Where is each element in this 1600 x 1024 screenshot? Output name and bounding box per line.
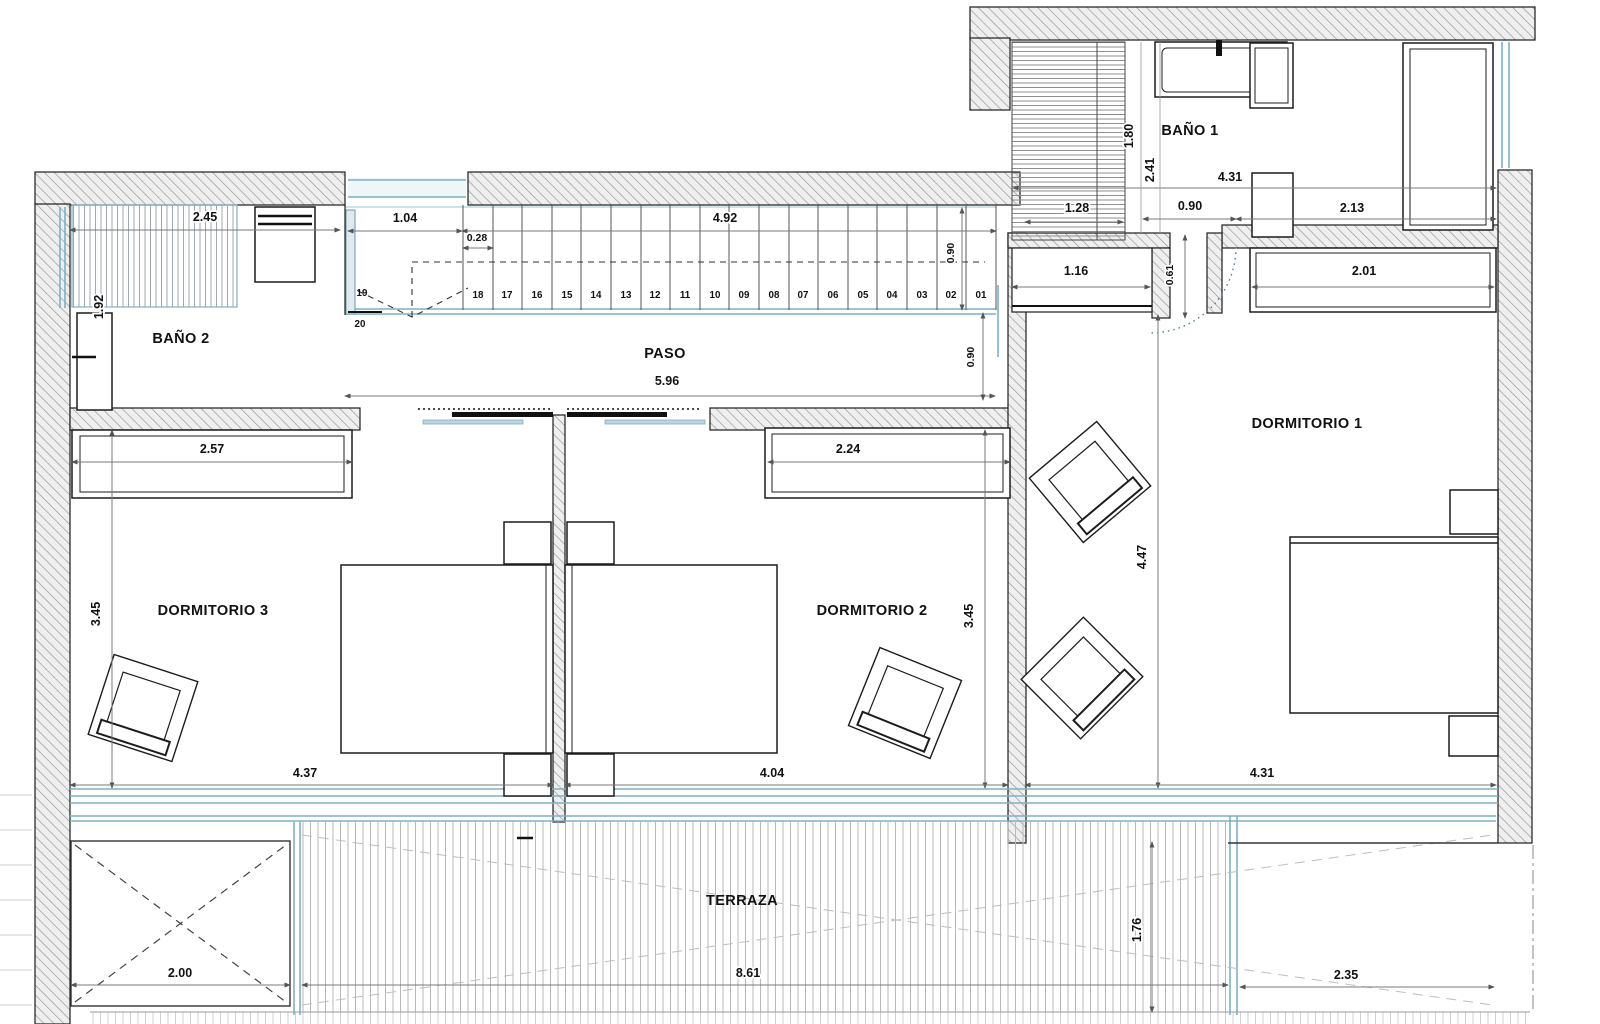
armchair-dorm2 — [848, 648, 961, 759]
nightstand — [504, 754, 551, 796]
dim-bano1-a: 1.80 — [1122, 124, 1136, 148]
stair-step: 09 — [739, 290, 750, 301]
closet-116-front — [1012, 248, 1152, 312]
stair-step: 11 — [680, 290, 691, 301]
dim-bano2-depth: 1.92 — [92, 295, 106, 319]
terraza-area — [0, 795, 1533, 1024]
wardrobe-dorm3 — [72, 430, 352, 498]
dim-dorm2-depth: 3.45 — [962, 604, 976, 628]
dim-stair-run: 4.92 — [713, 211, 737, 225]
terraza-right-divider — [1230, 816, 1237, 1015]
label-dormitorio1: DORMITORIO 1 — [1252, 416, 1363, 432]
label-terraza: TERRAZA — [706, 893, 778, 909]
dim-stair-tread: 0.28 — [467, 232, 488, 244]
dim-dorm3-wardrobe: 2.57 — [200, 442, 224, 456]
stair-step: 16 — [532, 290, 543, 301]
nightstand — [567, 522, 614, 564]
nightstand — [1450, 490, 1498, 534]
armchair-dorm1-b — [1021, 617, 1143, 739]
wall-door-stub — [1207, 233, 1222, 313]
wall-bano2-bottom — [70, 408, 360, 430]
room-labels: BAÑO 1 BAÑO 2 PASO DORMITORIO 1 DORMITOR… — [152, 121, 1362, 909]
dim-dorm1-wardrobe: 2.01 — [1352, 264, 1376, 278]
wall-top-right — [970, 7, 1535, 40]
dim-stair-landing: 1.04 — [393, 211, 417, 225]
dim-bano1-b: 2.41 — [1143, 158, 1157, 182]
dim-dorm2-wardrobe: 2.24 — [836, 442, 860, 456]
floor-plan-drawing: 01 02 03 04 05 06 07 08 09 10 11 12 13 1… — [0, 0, 1600, 1024]
stair-step: 10 — [710, 290, 721, 301]
label-paso: PASO — [644, 346, 686, 362]
stair-step: 08 — [769, 290, 780, 301]
deck-lower-strip — [90, 1012, 1530, 1024]
sink-bano2 — [255, 207, 315, 282]
dim-terraza-open-width: 2.35 — [1334, 968, 1358, 982]
wall-paso-bottom — [710, 408, 1010, 430]
dim-terraza-width: 8.61 — [736, 966, 760, 980]
dim-dorm2-width: 4.04 — [760, 766, 784, 780]
floor-plan-page: 01 02 03 04 05 06 07 08 09 10 11 12 13 1… — [0, 0, 1600, 1024]
terraza-left-divider — [294, 822, 300, 1015]
skylight-opening — [71, 841, 290, 1006]
bed-dorm2 — [565, 565, 777, 753]
sink-bano1 — [1250, 43, 1293, 108]
bed-dorm3 — [341, 565, 553, 753]
stair-step: 17 — [502, 290, 513, 301]
terraza-top-edge — [70, 816, 1496, 821]
stair-step: 02 — [946, 290, 957, 301]
dim-bano1-right: 2.13 — [1340, 201, 1364, 215]
stair-step: 01 — [976, 290, 987, 301]
wall-right-exterior — [1498, 170, 1532, 843]
stair-step-19: 19 — [357, 288, 368, 299]
deck-boards — [302, 822, 1228, 1012]
stair-step: 04 — [887, 290, 898, 301]
toilet — [1252, 173, 1293, 237]
dim-paso-width: 0.90 — [965, 347, 977, 368]
nightstand — [1449, 716, 1498, 756]
stair-step: 07 — [798, 290, 809, 301]
nightstand — [567, 754, 614, 796]
dim-dorm1-closet: 1.16 — [1064, 264, 1088, 278]
wardrobe-dorm2 — [765, 428, 1010, 498]
dim-paso-length: 5.96 — [655, 374, 679, 388]
stair-step: 18 — [473, 290, 484, 301]
dim-stair-width: 0.90 — [945, 243, 957, 264]
wall-bedroom-divider — [553, 415, 565, 822]
dim-bano2-width: 2.45 — [193, 210, 217, 224]
dim-bano1-closet: 1.28 — [1065, 201, 1089, 215]
furniture-dormitorio1 — [1012, 248, 1498, 756]
window-bedrooms-terraza — [70, 789, 1498, 803]
furniture-dormitorio2 — [565, 428, 1010, 796]
armchair-dorm1-a — [1029, 422, 1150, 543]
window-bano1-right — [1502, 42, 1509, 168]
bed-dorm1 — [1290, 537, 1498, 713]
dim-terraza-depth: 1.76 — [1130, 918, 1144, 942]
dim-dorm1-depth: 4.47 — [1135, 545, 1149, 569]
label-bano1: BAÑO 1 — [1161, 121, 1218, 139]
exterior-ground-lines — [0, 795, 32, 1005]
dim-bano1-width: 4.31 — [1218, 170, 1242, 184]
label-dormitorio3: DORMITORIO 3 — [158, 603, 269, 619]
stair-step: 05 — [858, 290, 869, 301]
wardrobe-dorm1 — [1250, 248, 1496, 312]
stair-step: 06 — [828, 290, 839, 301]
dim-dorm3-width: 4.37 — [293, 766, 317, 780]
dim-skylight-width: 2.00 — [168, 966, 192, 980]
radiator-unit — [72, 313, 112, 410]
furniture-dormitorio3 — [72, 430, 553, 796]
stair-step: 12 — [650, 290, 661, 301]
stairs: 01 02 03 04 05 06 07 08 09 10 11 12 13 1… — [345, 205, 996, 330]
armchair-dorm3 — [88, 654, 198, 761]
dim-dorm3-depth: 3.45 — [89, 602, 103, 626]
wall-center-vertical — [1008, 233, 1026, 843]
shower-bano1 — [1403, 43, 1493, 230]
wall-top-left-band — [35, 172, 345, 205]
wall-top-mid-band — [468, 172, 1020, 205]
nightstand — [504, 522, 551, 564]
fixtures-bano2 — [72, 205, 315, 410]
stair-step: 15 — [562, 290, 573, 301]
dim-bano1-door: 0.90 — [1178, 199, 1202, 213]
stair-step-20: 20 — [355, 319, 366, 330]
wall-bano1-left-stub — [970, 38, 1010, 110]
stair-step: 13 — [621, 290, 632, 301]
stair-step: 03 — [917, 290, 928, 301]
dim-dorm1-width: 4.31 — [1250, 766, 1274, 780]
bano2-door-leaf — [346, 210, 355, 314]
dim-dorm1-door: 0.61 — [1164, 265, 1176, 286]
window-stair-landing — [348, 178, 466, 198]
label-bano2: BAÑO 2 — [152, 329, 209, 347]
stair-step: 14 — [591, 290, 602, 301]
label-dormitorio2: DORMITORIO 2 — [817, 603, 928, 619]
wall-left-exterior — [35, 204, 70, 1024]
